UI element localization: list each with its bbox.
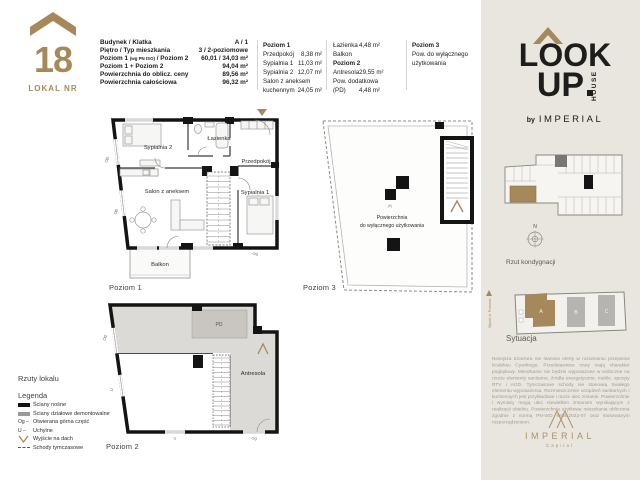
svg-text:Og: Og — [251, 436, 256, 441]
room-row: Sypialnia 212,07 m² — [263, 68, 322, 77]
unit-number: 18 — [26, 40, 80, 80]
logo-word-up: UP — [490, 69, 640, 101]
rooms-col-header: Poziom 1 — [263, 41, 290, 50]
p2-label-antresola: Antresola — [241, 371, 266, 377]
legend-title: Legenda — [18, 391, 47, 400]
p1-label-sypialnia2: Sypialnia 2 — [144, 145, 172, 151]
brand-sidebar: LOOK UP HOUSE byIMPERIAL N — [481, 0, 640, 480]
spec-label: Piętro / Typ mieszkania — [100, 47, 170, 55]
plans-section-title: Rzuty lokalu — [18, 374, 59, 383]
spec-value: 3 / 2-poziomowe — [199, 47, 248, 55]
logo-brand: IMPERIAL — [539, 114, 603, 125]
plan3-caption: Poziom 3 — [303, 283, 336, 292]
entry-arrow-icon — [486, 290, 492, 296]
floor-plan-level2: Antresola PD Og U U Og — [95, 298, 290, 462]
room-row: Balkon — [333, 50, 380, 59]
compass-n-label: N — [533, 224, 537, 230]
footer-sub-brand: Capital — [495, 443, 625, 448]
entry-street-label: Wjazd ul. Przewóz — [488, 298, 492, 328]
logo-word-house: HOUSE — [591, 69, 600, 101]
rooms-col-header: Poziom 3 — [412, 41, 478, 50]
p1-label-przedpokoj: Przedpokój — [241, 159, 270, 165]
rooms-col-header: Poziom 2 — [333, 59, 380, 68]
site-detail — [519, 310, 523, 314]
legend-item: U – Uchylne — [18, 427, 110, 436]
spec-value: 89,56 m² — [222, 71, 248, 79]
svg-text:Og: Og — [104, 157, 110, 163]
highlighted-unit — [510, 186, 536, 202]
floor-plan-level1: Sypialnia 2 Łazienka Przedpokój Salon z … — [95, 108, 290, 295]
spec-row: Powierzchnia całościowa 96,32 m² — [100, 79, 248, 87]
p1-staircase — [207, 172, 230, 245]
plan1-caption: Poziom 1 — [109, 283, 142, 292]
spec-row: Budynek / Klatka A / 1 — [100, 39, 248, 47]
p1-entrance-arrow-icon — [257, 109, 267, 116]
room-row: Antresola29,55 m² — [333, 68, 380, 77]
room-row: Łazienka4,48 m² — [333, 41, 380, 50]
rooms-col3-line: użytkowania — [412, 59, 478, 68]
spec-row: Poziom 1 + Poziom 2 94,04 m² — [100, 63, 248, 71]
spec-value: 94,04 m² — [222, 63, 248, 71]
svg-text:do wyłącznego użytkowania: do wyłącznego użytkowania — [360, 223, 424, 229]
legend-item: Schody tymczasowe — [18, 444, 110, 453]
house-roof-icon — [30, 12, 76, 36]
logo-word-look: LOOK — [490, 42, 640, 69]
p3-chimney-marker: (K) — [388, 204, 392, 208]
spec-value: 96,32 m² — [222, 79, 248, 87]
rooms-level1-column: Poziom 1 Przedpokój8,38 m² Sypialnia 111… — [263, 41, 322, 95]
p2-temporary-stairs — [213, 355, 230, 427]
unit-number-label: LOKAL NR — [18, 84, 88, 93]
svg-text:Og: Og — [113, 209, 119, 215]
spec-value: 60,01 / 34,03 m² — [201, 55, 248, 63]
svg-text:C: C — [605, 309, 609, 315]
stair-core — [555, 155, 567, 167]
compass-icon: N — [527, 224, 544, 248]
svg-text:Og: Og — [102, 335, 108, 341]
legend-item: Wyjście na dach — [18, 435, 110, 444]
rooms-level2-column: Łazienka4,48 m² Balkon Poziom 2 Antresol… — [333, 41, 380, 95]
legend-item: Og – Otwierana górna część — [18, 418, 110, 427]
roof-exit-icon — [18, 435, 33, 443]
elevator-core — [584, 175, 593, 189]
solid-wall-swatch — [18, 403, 33, 407]
spec-label: Poziom 1 (wg PN ISO) / Poziom 2 — [100, 55, 188, 63]
temporary-stairs-swatch — [18, 447, 33, 448]
p1-label-balkon: Balkon — [151, 262, 169, 268]
p1-label-salon: Salon z aneksem — [145, 189, 190, 195]
spec-row: Poziom 1 (wg PN ISO) / Poziom 2 60,01 / … — [100, 55, 248, 63]
spec-row: Piętro / Typ mieszkania 3 / 2-poziomowe — [100, 47, 248, 55]
room-row: Sypialnia 111,03 m² — [263, 59, 322, 68]
p3-stair-enclosure — [442, 138, 472, 222]
svg-text:U: U — [174, 436, 177, 441]
room-row: (PD)4,48 m² — [333, 86, 380, 95]
partition-wall-swatch — [18, 412, 33, 416]
room-row: Salon z aneksem — [263, 77, 322, 86]
legend-item: Ściany nośne — [18, 401, 110, 410]
site-plan-caption: Sytuacja — [506, 334, 537, 343]
logo-byline: byIMPERIAL — [490, 113, 640, 126]
spec-label: Budynek / Klatka — [100, 39, 152, 47]
p1-label-sypialnia1: Sypialnia 1 — [241, 190, 269, 196]
header-divider — [326, 40, 327, 90]
site-detail — [519, 318, 523, 322]
room-row: Pow. dodatkowa — [333, 77, 380, 86]
spec-label: Powierzchnia całościowa — [100, 79, 177, 87]
svg-text:U: U — [109, 388, 114, 392]
footer-brand: IMPERIAL — [495, 431, 625, 441]
p1-label-lazienka: Łazienka — [207, 136, 231, 142]
spec-label: Powierzchnia do oblicz. ceny — [100, 71, 188, 79]
svg-text:Powierzchnia: Powierzchnia — [377, 215, 408, 221]
header-divider — [257, 40, 258, 90]
spec-value: A / 1 — [235, 39, 248, 47]
room-row: kuchennym24,05 m² — [263, 86, 322, 95]
rooms-level3-column: Poziom 3 Pow. do wyłącznego użytkowania — [412, 41, 478, 68]
p2-label-pd: PD — [216, 322, 223, 328]
spec-table: Budynek / Klatka A / 1 Piętro / Typ mies… — [100, 39, 248, 87]
top-hung-symbol: Og – — [18, 419, 33, 425]
header-divider — [406, 40, 407, 90]
floorplan-caption: Rzut kondygnacji — [506, 259, 556, 266]
logo-by: by — [527, 117, 535, 124]
floor-plan-level3: (K) Powierzchnia do wyłącznego użytkowan… — [300, 108, 480, 300]
legend-item: Ściany działowe demontowalne — [18, 410, 110, 419]
imperial-monogram-icon — [547, 409, 575, 429]
tilt-symbol: U – — [18, 428, 33, 434]
rooms-col3-line: Pow. do wyłącznego — [412, 50, 478, 59]
site-plan: A B C Wjazd ul. Przewóz — [483, 286, 633, 336]
plan2-caption: Poziom 2 — [106, 442, 139, 451]
unit-card: 18 LOKAL NR Budynek / Klatka A / 1 Piętr… — [0, 0, 640, 480]
spec-row: Powierzchnia do oblicz. ceny 89,56 m² — [100, 71, 248, 79]
svg-text:Og: Og — [252, 251, 257, 256]
room-row: Przedpokój8,38 m² — [263, 50, 322, 59]
spec-label: Poziom 1 + Poziom 2 — [100, 63, 163, 71]
legend-items: Ściany nośne Ściany działowe demontowaln… — [18, 401, 110, 452]
building-floor-plan: N — [500, 153, 626, 255]
